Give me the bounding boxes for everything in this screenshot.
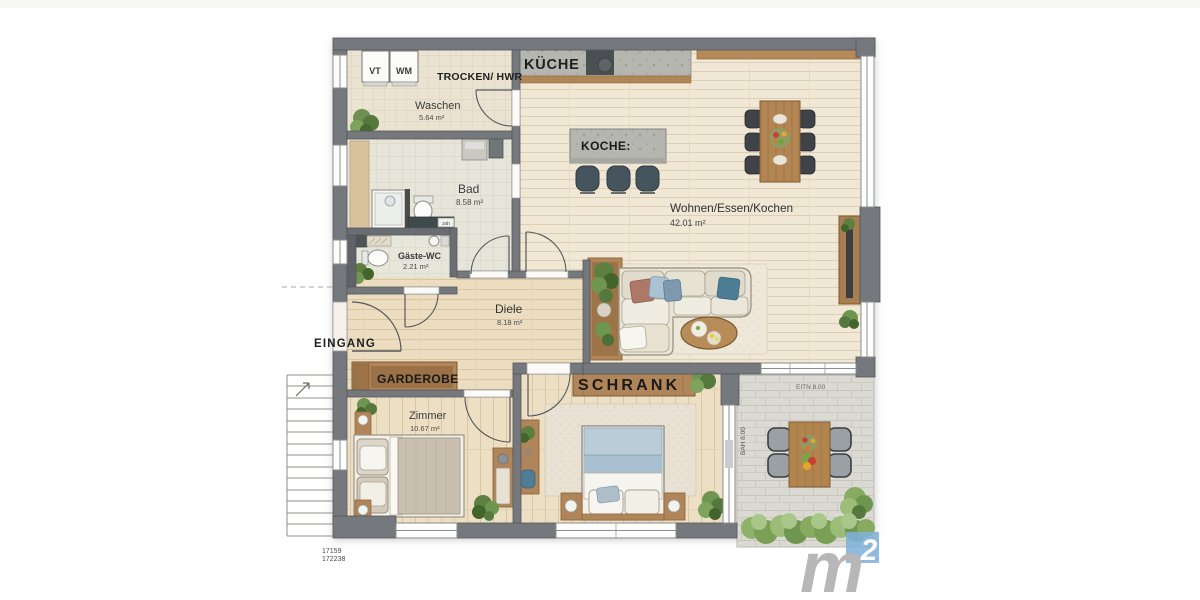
svg-text:Diele: Diele xyxy=(495,302,523,316)
svg-text:BAH 8.00: BAH 8.00 xyxy=(740,427,747,455)
svg-text:KOCHE:: KOCHE: xyxy=(581,139,631,153)
svg-text:17159: 17159 xyxy=(322,548,342,555)
svg-text:EITN 8.00: EITN 8.00 xyxy=(796,384,826,391)
svg-text:Wohnen/Essen/Kochen: Wohnen/Essen/Kochen xyxy=(670,201,793,215)
svg-text:10.67 m²: 10.67 m² xyxy=(410,424,440,433)
svg-text:m: m xyxy=(800,528,864,600)
svg-text:Waschen: Waschen xyxy=(415,100,460,112)
svg-text:KÜCHE: KÜCHE xyxy=(524,56,580,73)
svg-text:8.18 m²: 8.18 m² xyxy=(497,318,523,327)
svg-text:Bad: Bad xyxy=(458,182,479,196)
svg-text:WM: WM xyxy=(396,66,412,76)
svg-text:5.64 m²: 5.64 m² xyxy=(419,113,445,122)
svg-text:TROCKEN/ HWR: TROCKEN/ HWR xyxy=(437,71,522,83)
svg-text:2.21 m²: 2.21 m² xyxy=(403,262,429,271)
svg-text:24h: 24h xyxy=(442,221,450,226)
svg-text:VT: VT xyxy=(369,66,381,76)
svg-text:Gäste-WC: Gäste-WC xyxy=(398,251,442,261)
svg-text:42.01 m²: 42.01 m² xyxy=(670,218,706,228)
svg-text:8.58 m²: 8.58 m² xyxy=(456,198,483,207)
svg-text:SCHRANK: SCHRANK xyxy=(578,377,680,394)
svg-text:172238: 172238 xyxy=(322,556,345,563)
svg-text:Zimmer: Zimmer xyxy=(409,410,447,422)
svg-text:EINGANG: EINGANG xyxy=(314,338,376,350)
svg-text:GARDEROBE: GARDEROBE xyxy=(377,372,459,386)
